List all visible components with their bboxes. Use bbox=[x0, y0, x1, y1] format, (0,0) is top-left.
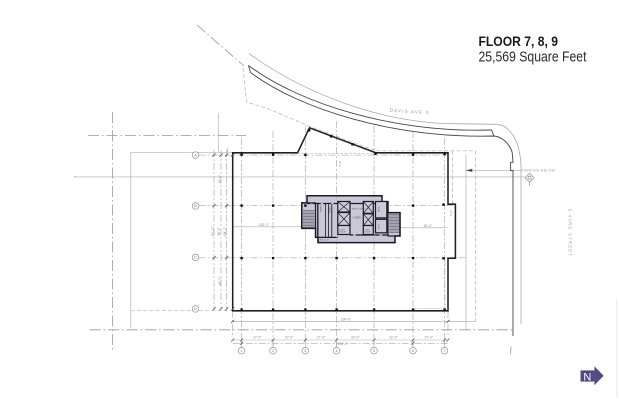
svg-text:50'-0": 50'-0" bbox=[424, 224, 433, 228]
svg-text:27'-0": 27'-0" bbox=[253, 336, 262, 340]
svg-text:EQUIP: EQUIP bbox=[340, 232, 347, 234]
svg-text:27'-0": 27'-0" bbox=[317, 336, 326, 340]
svg-text:90'-10": 90'-10" bbox=[211, 225, 215, 236]
svg-text:25,569 Square Feet: 25,569 Square Feet bbox=[479, 50, 587, 66]
svg-text:STAIR 1: STAIR 1 bbox=[320, 204, 323, 212]
svg-text:242'-1": 242'-1" bbox=[259, 223, 270, 227]
svg-text:C: C bbox=[194, 256, 197, 260]
svg-text:4: 4 bbox=[336, 349, 338, 353]
svg-text:27'-0": 27'-0" bbox=[424, 336, 433, 340]
svg-text:184'-1": 184'-1" bbox=[223, 226, 227, 237]
svg-text:32'-0": 32'-0" bbox=[351, 336, 360, 340]
svg-text:S 43RD STREET: S 43RD STREET bbox=[567, 209, 572, 258]
svg-text:MECH: MECH bbox=[379, 206, 381, 212]
svg-text:ELEV LOBBY: ELEV LOBBY bbox=[352, 209, 366, 211]
svg-text:6: 6 bbox=[412, 349, 414, 353]
svg-text:42'-0": 42'-0" bbox=[218, 276, 222, 285]
svg-text:DAVIS AVE S: DAVIS AVE S bbox=[390, 108, 431, 115]
svg-text:8'-0": 8'-0" bbox=[338, 161, 342, 167]
svg-text:ELEC: ELEC bbox=[379, 223, 381, 229]
svg-text:42'-0": 42'-0" bbox=[218, 174, 222, 183]
svg-text:3: 3 bbox=[304, 349, 306, 353]
svg-text:132'-0": 132'-0" bbox=[338, 342, 349, 346]
svg-text:N: N bbox=[583, 371, 591, 383]
svg-text:EQUIP: EQUIP bbox=[365, 232, 372, 234]
svg-text:27'-0": 27'-0" bbox=[285, 336, 294, 340]
svg-text:FLOOR 7, 8, 9: FLOOR 7, 8, 9 bbox=[479, 33, 559, 49]
svg-text:5: 5 bbox=[373, 349, 375, 353]
svg-text:9'-0": 9'-0" bbox=[449, 210, 453, 216]
svg-text:SHAFT: SHAFT bbox=[329, 206, 332, 213]
svg-text:PARKING BELOW: PARKING BELOW bbox=[522, 168, 555, 172]
svg-text:1: 1 bbox=[241, 349, 243, 353]
svg-text:2: 2 bbox=[272, 349, 274, 353]
svg-text:D: D bbox=[194, 307, 197, 311]
svg-text:38'-2": 38'-2" bbox=[217, 226, 221, 235]
svg-text:JAN CLOS: JAN CLOS bbox=[319, 239, 329, 242]
svg-text:32'-0": 32'-0" bbox=[389, 336, 398, 340]
svg-text:LOBBY: LOBBY bbox=[353, 215, 362, 219]
svg-text:190'-6": 190'-6" bbox=[341, 317, 352, 321]
svg-text:7: 7 bbox=[444, 349, 446, 353]
